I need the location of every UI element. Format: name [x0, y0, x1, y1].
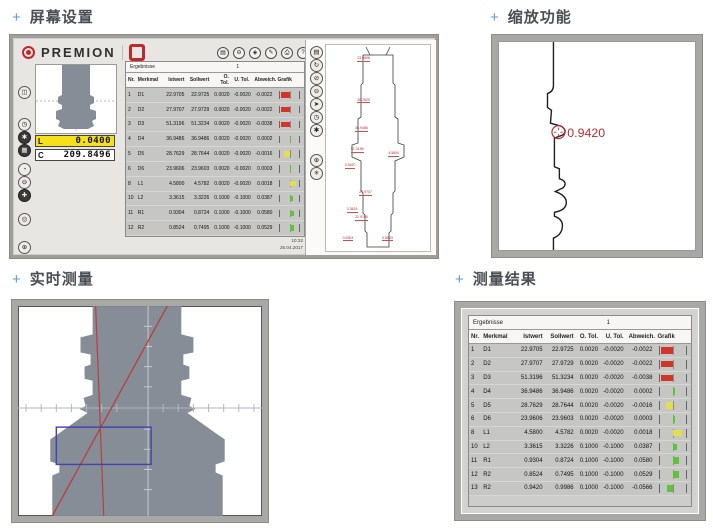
minus-icon[interactable]: ⊖ [310, 85, 323, 98]
monitor-icon[interactable]: ▤ [217, 47, 229, 59]
cell-nr: 12 [126, 221, 136, 236]
deviation-bar [281, 92, 290, 98]
deviation-bar [290, 166, 291, 172]
redo-icon[interactable]: ↻ [310, 59, 323, 72]
zoom-out-icon[interactable]: ⊖ [233, 47, 245, 59]
disable-icon[interactable]: ⊘ [310, 72, 323, 85]
cell-merkmal: R2 [481, 468, 514, 482]
cell-o_tol: 0.1000 [212, 235, 232, 237]
measure-icon[interactable]: ◫ [18, 86, 31, 99]
result-row[interactable]: 11R10.93040.87240.1000-0.10000.0580 [126, 206, 304, 221]
cell-merkmal: R2 [481, 481, 514, 495]
cell-nr: 10 [469, 440, 481, 454]
marker-value: 0.9420 [567, 126, 605, 140]
cell-nr: 13 [469, 481, 481, 495]
zoom-view-panel[interactable]: 0.9420 [492, 35, 702, 257]
column-header[interactable]: U. Tol. [232, 73, 252, 88]
cell-istwert: 4.5800 [162, 176, 187, 191]
cell-merkmal: D1 [481, 344, 514, 358]
cell-sollwert: 36.9486 [187, 132, 212, 147]
cell-istwert: 28.7629 [515, 399, 546, 413]
diamond-icon[interactable]: ◈ [249, 47, 261, 59]
tolerance-track [279, 195, 300, 202]
result-row[interactable]: 3D351.319651.32340.0020-0.0020-0.0038 [469, 371, 691, 385]
expand-icon[interactable]: + [12, 271, 21, 288]
result-row[interactable]: 5D528.762928.76440.0020-0.0020-0.0016 [469, 399, 691, 413]
result-row[interactable]: 1D122.970522.97250.0020-0.0020-0.0022 [126, 88, 304, 103]
tolerance-track [659, 387, 687, 396]
deviation-bar [284, 151, 290, 157]
result-row[interactable]: 8L14.58004.57820.0020-0.00200.0018 [126, 176, 304, 191]
result-row[interactable]: 13R20.94200.99860.1000-0.1000-0.0566 [469, 481, 691, 495]
column-header[interactable]: Merkmal [481, 330, 514, 344]
part-shape [56, 65, 96, 129]
cell-o_tol: 0.0020 [577, 371, 601, 385]
cell-sollwert: 4.5782 [546, 426, 577, 440]
cell-merkmal: L2 [136, 191, 163, 206]
cell-abweich: -0.0022 [252, 88, 275, 103]
result-row[interactable]: 11R10.93040.87240.1000-0.10000.0580 [469, 454, 691, 468]
cell-merkmal: D4 [481, 385, 514, 399]
cell-abweich: 0.0003 [252, 161, 275, 176]
cell-u_tol: -0.0020 [232, 161, 252, 176]
deviation-bar [661, 361, 673, 368]
section-title-zoom-function: 缩放功能 [508, 6, 572, 27]
cell-abweich: 0.0002 [252, 132, 275, 147]
dimension-label: 0.9420 [345, 164, 356, 169]
brand-name: PREMION [41, 45, 116, 60]
cell-istwert: 51.3196 [162, 117, 187, 132]
deviation-bar [290, 196, 293, 202]
expand-icon[interactable]: + [12, 9, 21, 26]
cell-merkmal: R2 [136, 235, 163, 237]
cell-grafik [275, 88, 304, 103]
cell-merkmal: R1 [481, 454, 514, 468]
profile-prongs [366, 47, 390, 55]
cell-sollwert: 28.7644 [546, 399, 577, 413]
column-header[interactable]: Abweich. [627, 330, 656, 344]
cell-u_tol: -0.0020 [601, 412, 627, 426]
time-icon[interactable]: ◷ [310, 111, 323, 124]
cell-sollwert: 0.9986 [546, 481, 577, 495]
cell-o_tol: 0.1000 [212, 221, 232, 236]
cell-o_tol: 0.0020 [577, 344, 601, 358]
notes-icon[interactable]: ▤ [310, 46, 323, 59]
cell-nr: 6 [469, 412, 481, 426]
cell-grafik [275, 161, 304, 176]
cell-u_tol: -0.0020 [601, 371, 627, 385]
minus-icon[interactable]: ⊖ [18, 176, 31, 189]
section-header-results: + 测量结果 [455, 268, 537, 289]
timestamp: 10:32 26.04.2017 [249, 238, 303, 252]
cell-nr: 11 [126, 206, 136, 221]
cell-sollwert: 51.3234 [187, 117, 212, 132]
cell-o_tol: 0.0020 [577, 357, 601, 371]
deviation-bar [290, 137, 291, 143]
cell-u_tol: -0.0020 [601, 344, 627, 358]
cell-merkmal: L1 [136, 176, 163, 191]
cell-o_tol: 0.1000 [212, 191, 232, 206]
cell-grafik [655, 440, 691, 454]
column-header[interactable]: Nr. [469, 330, 481, 344]
cell-istwert: 0.9420 [515, 481, 546, 495]
dimension-label: 27.9707 [359, 191, 372, 196]
deviation-bar [673, 444, 677, 451]
result-row[interactable]: 4D436.948636.94860.0020-0.00200.0002 [469, 385, 691, 399]
cell-u_tol: -0.1000 [601, 440, 627, 454]
cell-grafik [655, 412, 691, 426]
cell-nr: 2 [469, 357, 481, 371]
cell-sollwert: 0.9986 [187, 235, 212, 237]
cell-nr: 11 [469, 454, 481, 468]
column-header[interactable]: Istwert [515, 330, 546, 344]
cell-merkmal: L1 [481, 426, 514, 440]
cell-merkmal: D4 [136, 132, 163, 147]
live-view [18, 306, 262, 516]
cell-istwert: 36.9486 [515, 385, 546, 399]
result-row[interactable]: 8L14.58004.57820.0020-0.00200.0018 [469, 426, 691, 440]
result-row[interactable]: 2D227.970727.97290.0020-0.0020-0.0022 [126, 102, 304, 117]
cell-abweich: -0.0566 [627, 481, 656, 495]
dimension-label: 23.9606 [357, 57, 370, 62]
cell-abweich: 0.0002 [627, 385, 656, 399]
cell-istwert: 22.9705 [515, 344, 546, 358]
cell-istwert: 0.9420 [162, 235, 187, 237]
cell-nr: 10 [126, 191, 136, 206]
cell-o_tol: 0.1000 [577, 481, 601, 495]
deviation-bar [673, 457, 679, 464]
cell-grafik [275, 191, 304, 206]
result-row[interactable]: 10L23.36153.32260.1000-0.10000.0387 [126, 191, 304, 206]
probe-icon[interactable]: ◔ [18, 163, 31, 176]
section-header-live-measure: + 实时测量 [12, 268, 94, 289]
results-table-large: Ergebnisse1Nr.MerkmalIstwertSollwertO. T… [468, 315, 692, 507]
grid-icon[interactable]: ▦ [18, 144, 31, 157]
cell-abweich: 0.0580 [627, 454, 656, 468]
dimension-label: 51.3196 [351, 148, 364, 153]
section-title-results: 测量结果 [473, 268, 537, 289]
column-header[interactable]: Sollwert [546, 330, 577, 344]
cell-grafik [655, 357, 691, 371]
cell-merkmal: R2 [136, 221, 163, 236]
cell-o_tol: 0.0020 [212, 161, 232, 176]
cell-u_tol: -0.1000 [232, 221, 252, 236]
column-header[interactable]: Nr. [126, 73, 136, 88]
column-header[interactable]: O. Tol. [577, 330, 601, 344]
part-profile-outline [326, 45, 430, 251]
cell-grafik [275, 221, 304, 236]
cursor-icon[interactable]: ➤ [310, 98, 323, 111]
deviation-bar [673, 388, 675, 395]
cell-istwert: 0.9304 [515, 454, 546, 468]
cell-nr: 8 [469, 426, 481, 440]
zoom-contour-view: 0.9420 [498, 41, 696, 251]
result-row[interactable]: 4D436.948636.94860.0020-0.00200.0002 [126, 132, 304, 147]
dimension-label: 0.9304 [343, 237, 354, 242]
deviation-bar [666, 402, 674, 409]
cell-sollwert: 27.9729 [546, 357, 577, 371]
cell-u_tol: -0.0020 [601, 399, 627, 413]
timestamp-time: 10:32 [249, 238, 303, 245]
cell-u_tol: -0.0020 [601, 357, 627, 371]
section-header-zoom-function: + 缩放功能 [490, 6, 572, 27]
results-table-tab[interactable]: 1 [607, 320, 610, 326]
cell-nr: 3 [126, 117, 136, 132]
results-grid: Nr.MerkmalIstwertSollwertO. Tol.U. Tol.A… [126, 73, 304, 237]
result-row[interactable]: 5D528.762928.76440.0020-0.0020-0.0016 [126, 147, 304, 162]
target-icon[interactable]: ◎ [18, 213, 31, 226]
cell-abweich: -0.0022 [252, 102, 275, 117]
cell-nr: 1 [126, 88, 136, 103]
cell-o_tol: 0.1000 [577, 440, 601, 454]
result-row[interactable]: 6D623.960623.96030.0020-0.00200.0003 [469, 412, 691, 426]
cell-merkmal: D6 [481, 412, 514, 426]
cell-merkmal: R1 [136, 206, 163, 221]
cell-grafik [275, 102, 304, 117]
cell-istwert: 0.9304 [162, 206, 187, 221]
gear-icon[interactable]: ✱ [18, 131, 31, 144]
deviation-bar [673, 416, 675, 423]
cell-grafik [655, 426, 691, 440]
cell-o_tol: 0.0020 [212, 132, 232, 147]
tolerance-track [279, 165, 300, 172]
align-icon[interactable]: ⊕ [310, 154, 323, 167]
part-silhouette-large [50, 306, 224, 516]
results-panel: Ergebnisse1Nr.MerkmalIstwertSollwertO. T… [455, 302, 705, 520]
cell-grafik [655, 481, 691, 495]
cell-sollwert: 36.9486 [546, 385, 577, 399]
results-table-tab[interactable]: 1 [236, 64, 239, 70]
cell-grafik [655, 371, 691, 385]
cell-nr: 5 [469, 399, 481, 413]
dimension-label: 4.5800 [388, 152, 399, 157]
cell-merkmal: D2 [136, 102, 163, 117]
result-row[interactable]: 12R20.85240.74950.1000-0.10000.0529 [126, 221, 304, 236]
cell-abweich: -0.0566 [252, 235, 275, 237]
deviation-bar [667, 485, 673, 492]
tolerance-track [279, 224, 300, 231]
page: + 屏幕设置 + 缩放功能 + 实时测量 + 测量结果 PREMION ▤⊖◈✎… [0, 0, 713, 529]
deviation-bar [290, 211, 294, 217]
cell-u_tol: -0.0020 [232, 88, 252, 103]
cell-u_tol: -0.1000 [601, 454, 627, 468]
cell-o_tol: 0.0020 [212, 176, 232, 191]
deviation-bar [281, 107, 290, 113]
cell-merkmal: D3 [481, 371, 514, 385]
center-icon[interactable]: ⊕ [18, 241, 31, 254]
readout-c-value: 209.8496 [51, 150, 114, 160]
cell-sollwert: 0.8724 [546, 454, 577, 468]
cell-merkmal: L2 [481, 440, 514, 454]
cell-u_tol: -0.0020 [232, 117, 252, 132]
column-header[interactable]: Grafik [275, 73, 304, 88]
cell-sollwert: 51.3234 [546, 371, 577, 385]
cell-grafik [275, 132, 304, 147]
cell-o_tol: 0.0020 [577, 412, 601, 426]
cell-o_tol: 0.1000 [577, 454, 601, 468]
results-table-small: Ergebnisse1Nr.MerkmalIstwertSollwertO. T… [125, 61, 305, 237]
divider [122, 45, 123, 60]
part-silhouette-small [36, 65, 116, 133]
cell-nr: 2 [126, 102, 136, 117]
cell-abweich: -0.0016 [252, 147, 275, 162]
live-measure-panel[interactable] [12, 300, 268, 522]
cell-sollwert: 28.7644 [187, 147, 212, 162]
premion-window: PREMION ▤⊖◈✎⎙? ◫◷✱▦◔⊖✚◎⊕ L 0.0400 C 209.… [10, 35, 438, 258]
cell-o_tol: 0.1000 [212, 206, 232, 221]
premion-o-mark-icon [129, 44, 145, 61]
cell-abweich: 0.0018 [627, 426, 656, 440]
column-header[interactable]: Grafik [655, 330, 691, 344]
section-title-live-measure: 实时测量 [30, 268, 94, 289]
results-table-title: Ergebnisse [130, 64, 155, 70]
cell-grafik [655, 468, 691, 482]
column-header[interactable]: U. Tol. [601, 330, 627, 344]
settings-icon[interactable]: ✱ [310, 124, 323, 137]
deviation-bar [290, 181, 296, 187]
tolerance-track [659, 429, 687, 438]
deviation-bar [281, 122, 290, 128]
deviation-bar [290, 225, 294, 231]
cell-grafik [655, 454, 691, 468]
cell-u_tol: -0.1000 [232, 206, 252, 221]
clock-icon[interactable]: ◷ [18, 118, 31, 131]
cell-sollwert: 22.9725 [546, 344, 577, 358]
cell-sollwert: 3.3226 [187, 191, 212, 206]
cell-grafik [275, 117, 304, 132]
tolerance-track [659, 456, 687, 465]
cell-nr: 12 [469, 468, 481, 482]
cell-u_tol: -0.0020 [232, 102, 252, 117]
dimension-label: 36.9486 [355, 127, 368, 132]
cell-sollwert: 27.9729 [187, 102, 212, 117]
cell-nr: 4 [469, 385, 481, 399]
readout-c[interactable]: C 209.8496 [35, 149, 115, 161]
cell-sollwert: 0.7495 [546, 468, 577, 482]
cell-u_tol: -0.0020 [601, 385, 627, 399]
dimension-label: 0.8524 [382, 237, 393, 242]
result-row[interactable]: 3D351.319651.32340.0020-0.0020-0.0038 [126, 117, 304, 132]
tolerance-track [279, 106, 300, 113]
cell-istwert: 0.8524 [162, 221, 187, 236]
cell-istwert: 23.9606 [162, 161, 187, 176]
window-toolbar: ▤⊖◈✎⎙? [217, 47, 309, 59]
column-header[interactable]: O. Tol. [212, 73, 232, 88]
cell-u_tol: -0.0020 [601, 426, 627, 440]
camera-viewport[interactable] [35, 64, 117, 134]
cell-grafik [275, 176, 304, 191]
tolerance-track [659, 470, 687, 479]
result-row[interactable]: 1D122.970522.97250.0020-0.0020-0.0022 [469, 344, 691, 358]
contour-line [548, 42, 567, 250]
edit-icon[interactable]: ✎ [265, 47, 277, 59]
results-table-titlebar: Ergebnisse1 [126, 62, 304, 73]
cell-abweich: 0.0387 [627, 440, 656, 454]
tolerance-track [659, 360, 687, 369]
tolerance-track [279, 210, 300, 217]
cell-sollwert: 23.9603 [187, 161, 212, 176]
cell-u_tol: -0.1000 [601, 468, 627, 482]
readout-l[interactable]: L 0.0400 [35, 135, 115, 147]
cell-istwert: 28.7629 [162, 147, 187, 162]
results-table-title: Ergebnisse [473, 320, 503, 326]
expand-icon[interactable]: + [490, 9, 499, 26]
cell-grafik [655, 344, 691, 358]
tolerance-track [659, 346, 687, 355]
tolerance-track [279, 180, 300, 187]
cell-o_tol: 0.0020 [577, 426, 601, 440]
result-row[interactable]: 6D623.960623.96030.0020-0.00200.0003 [126, 161, 304, 176]
cell-merkmal: D5 [481, 399, 514, 413]
cell-abweich: -0.0016 [627, 399, 656, 413]
cell-abweich: 0.0529 [627, 468, 656, 482]
cell-istwert: 51.3196 [515, 371, 546, 385]
cell-merkmal: D3 [136, 117, 163, 132]
premion-logo-icon [22, 46, 35, 59]
results-table-titlebar: Ergebnisse1 [469, 316, 691, 330]
tolerance-track [279, 121, 300, 128]
part-profile-view[interactable]: 23.960628.762936.948651.31964.58000.9420… [325, 44, 431, 252]
cell-u_tol: -0.1000 [232, 235, 252, 237]
readout-c-label: C [36, 151, 51, 160]
cell-istwert: 27.9707 [162, 102, 187, 117]
timestamp-date: 26.04.2017 [249, 245, 303, 252]
cell-sollwert: 4.5782 [187, 176, 212, 191]
cell-sollwert: 0.7495 [187, 221, 212, 236]
column-header[interactable]: Istwert [162, 73, 187, 88]
crosshair-icon[interactable]: ✚ [18, 189, 31, 202]
column-header[interactable]: Sollwert [187, 73, 212, 88]
cell-u_tol: -0.0020 [232, 132, 252, 147]
cell-istwert: 23.9606 [515, 412, 546, 426]
result-row[interactable]: 2D227.970727.97290.0020-0.0020-0.0022 [469, 357, 691, 371]
result-row[interactable]: 10L23.36153.32260.1000-0.10000.0387 [469, 440, 691, 454]
result-row[interactable]: 13R20.94200.99860.1000-0.1000-0.0566 [126, 235, 304, 237]
cell-sollwert: 3.3226 [546, 440, 577, 454]
cell-merkmal: D6 [136, 161, 163, 176]
column-header[interactable]: Abweich. [252, 73, 275, 88]
dimension-label: 28.7629 [357, 99, 370, 104]
star-icon[interactable]: ✳ [310, 167, 323, 180]
cell-istwert: 36.9486 [162, 132, 187, 147]
cell-sollwert: 22.9725 [187, 88, 212, 103]
results-grid: Nr.MerkmalIstwertSollwertO. Tol.U. Tol.A… [469, 330, 691, 496]
cell-merkmal: D5 [136, 147, 163, 162]
tolerance-track [279, 136, 300, 143]
cell-u_tol: -0.1000 [232, 191, 252, 206]
result-row[interactable]: 12R20.85240.74950.1000-0.10000.0529 [469, 468, 691, 482]
tolerance-track [279, 91, 300, 98]
deviation-bar [661, 347, 673, 354]
tolerance-track [659, 484, 687, 493]
cell-grafik [275, 147, 304, 162]
print-icon[interactable]: ⎙ [281, 47, 293, 59]
cell-grafik [275, 235, 304, 237]
cell-istwert: 3.3615 [162, 191, 187, 206]
cell-o_tol: 0.0020 [577, 399, 601, 413]
cell-o_tol: 0.0020 [212, 88, 232, 103]
expand-icon[interactable]: + [455, 271, 464, 288]
cell-nr: 6 [126, 161, 136, 176]
cell-abweich: 0.0003 [627, 412, 656, 426]
cell-abweich: -0.0038 [627, 371, 656, 385]
cell-o_tol: 0.1000 [577, 468, 601, 482]
deviation-bar [673, 430, 682, 437]
sidebar-toolbar: ▤↻⊘⊖➤◷✱⊕✳ [308, 42, 323, 252]
cell-abweich: -0.0022 [627, 344, 656, 358]
left-toolbar: ◫◷✱▦◔⊖✚◎⊕ [16, 64, 33, 254]
column-header[interactable]: Merkmal [136, 73, 163, 88]
